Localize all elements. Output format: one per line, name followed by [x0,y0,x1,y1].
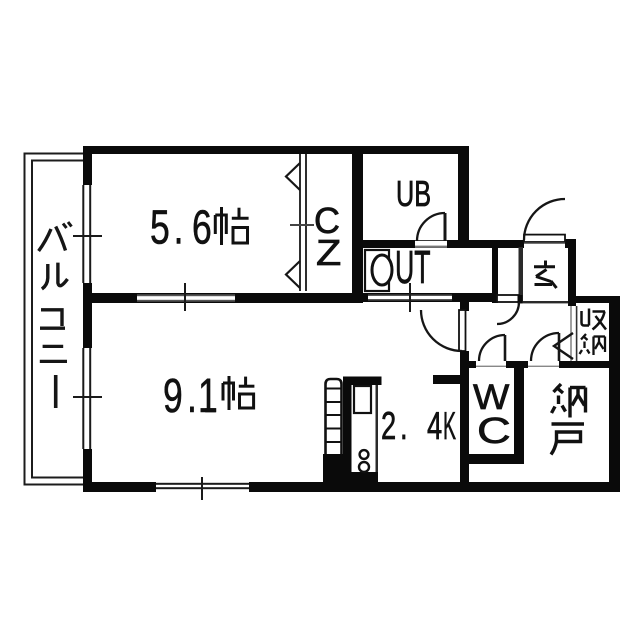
svg-text:K: K [443,404,456,448]
svg-text:4: 4 [427,405,442,448]
svg-text:1: 1 [198,369,218,422]
svg-text:Z: Z [316,233,341,273]
svg-text:5: 5 [150,200,170,253]
svg-text:UT: UT [395,241,431,292]
svg-text:UB: UB [396,174,431,215]
svg-text:.: . [174,200,184,253]
svg-text:2: 2 [381,405,396,448]
svg-text:6: 6 [192,200,212,253]
svg-text:9: 9 [163,369,183,422]
svg-text:.: . [187,369,197,422]
svg-text:C: C [477,410,511,451]
svg-text:.: . [400,405,408,448]
